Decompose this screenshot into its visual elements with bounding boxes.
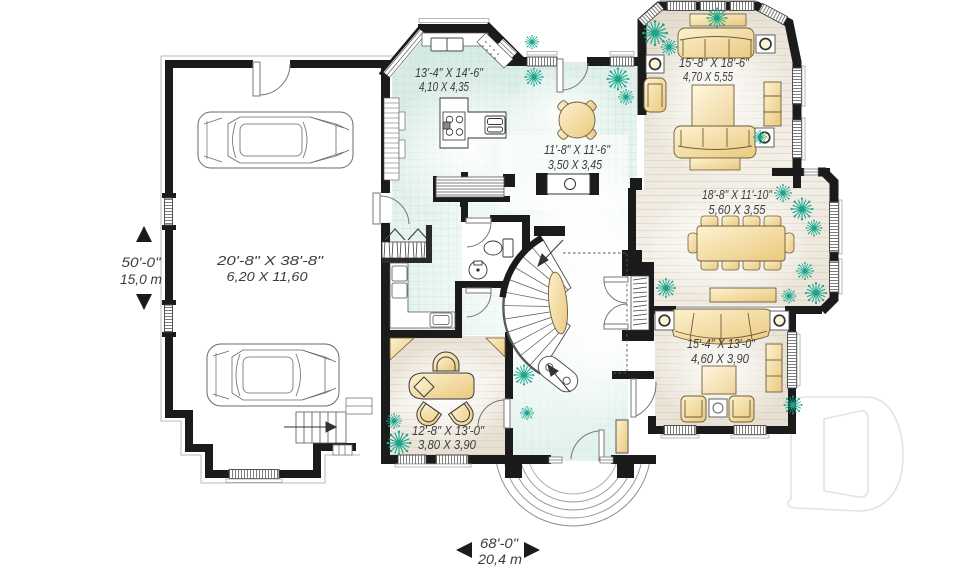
svg-text:4,70 X 5,55: 4,70 X 5,55	[683, 70, 733, 84]
svg-text:68'-0": 68'-0"	[480, 536, 519, 551]
svg-text:50'-0": 50'-0"	[122, 255, 162, 270]
svg-text:15'-4" X 13'-0": 15'-4" X 13'-0"	[687, 337, 755, 351]
svg-text:15,0 m: 15,0 m	[120, 272, 162, 287]
svg-text:3,80 X 3,90: 3,80 X 3,90	[418, 438, 476, 452]
svg-text:15'-8" X 18'-6": 15'-8" X 18'-6"	[679, 56, 749, 70]
svg-text:13'-4" X 14'-6": 13'-4" X 14'-6"	[415, 66, 483, 80]
svg-text:3,50 X 3,45: 3,50 X 3,45	[548, 158, 602, 172]
svg-text:5,60 X 3,55: 5,60 X 3,55	[709, 203, 766, 217]
svg-text:6,20 X 11,60: 6,20 X 11,60	[227, 269, 309, 284]
svg-text:20,4 m: 20,4 m	[477, 552, 522, 567]
svg-text:12'-8" X 13'-0": 12'-8" X 13'-0"	[412, 424, 485, 438]
svg-text:11'-8" X 11'-6": 11'-8" X 11'-6"	[544, 143, 610, 157]
svg-text:18'-8" X 11'-10": 18'-8" X 11'-10"	[702, 188, 772, 202]
svg-text:4,60 X 3,90: 4,60 X 3,90	[691, 352, 749, 366]
svg-text:4,10 X 4,35: 4,10 X 4,35	[419, 80, 469, 94]
svg-text:20'-8" X 38'-8": 20'-8" X 38'-8"	[216, 253, 325, 268]
